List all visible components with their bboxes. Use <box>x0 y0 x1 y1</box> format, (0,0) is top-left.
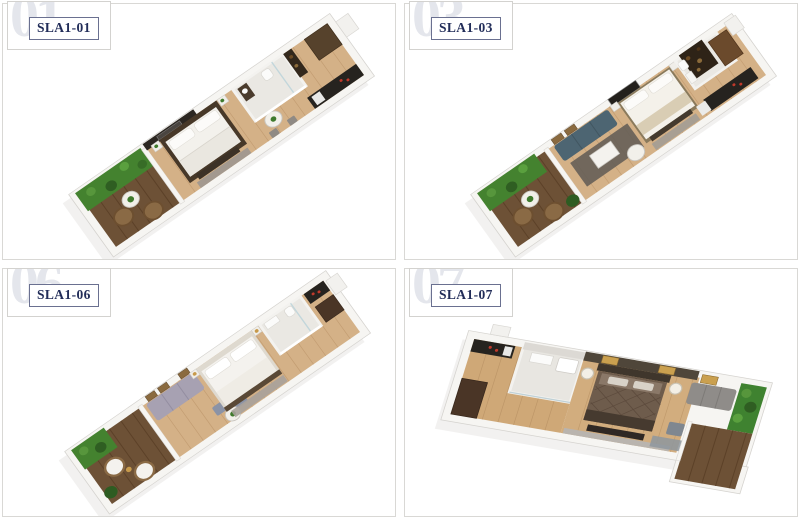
floorplan-panel-sla1-03: 03 SLA1-03 <box>404 3 798 260</box>
floorplan-panel-sla1-06: 06 SLA1-06 <box>2 268 396 517</box>
unit-label-box: SLA1-06 <box>29 284 99 307</box>
unit-label: SLA1-07 <box>439 287 493 302</box>
unit-card: 06 SLA1-06 <box>7 268 111 317</box>
unit-card: 07 SLA1-07 <box>409 268 513 317</box>
floorplan-sheet: 01 SLA1-01 <box>0 0 800 527</box>
unit-label-box: SLA1-01 <box>29 17 99 40</box>
unit-label: SLA1-03 <box>439 20 493 35</box>
unit-card: 03 SLA1-03 <box>409 1 513 50</box>
unit-card: 01 SLA1-01 <box>7 1 111 50</box>
floorplan-panel-sla1-07: 07 SLA1-07 <box>404 268 798 517</box>
unit-label-box: SLA1-07 <box>431 284 501 307</box>
unit-label-box: SLA1-03 <box>431 17 501 40</box>
floorplan-panel-sla1-01: 01 SLA1-01 <box>2 3 396 260</box>
unit-label: SLA1-01 <box>37 20 91 35</box>
unit-label: SLA1-06 <box>37 287 91 302</box>
